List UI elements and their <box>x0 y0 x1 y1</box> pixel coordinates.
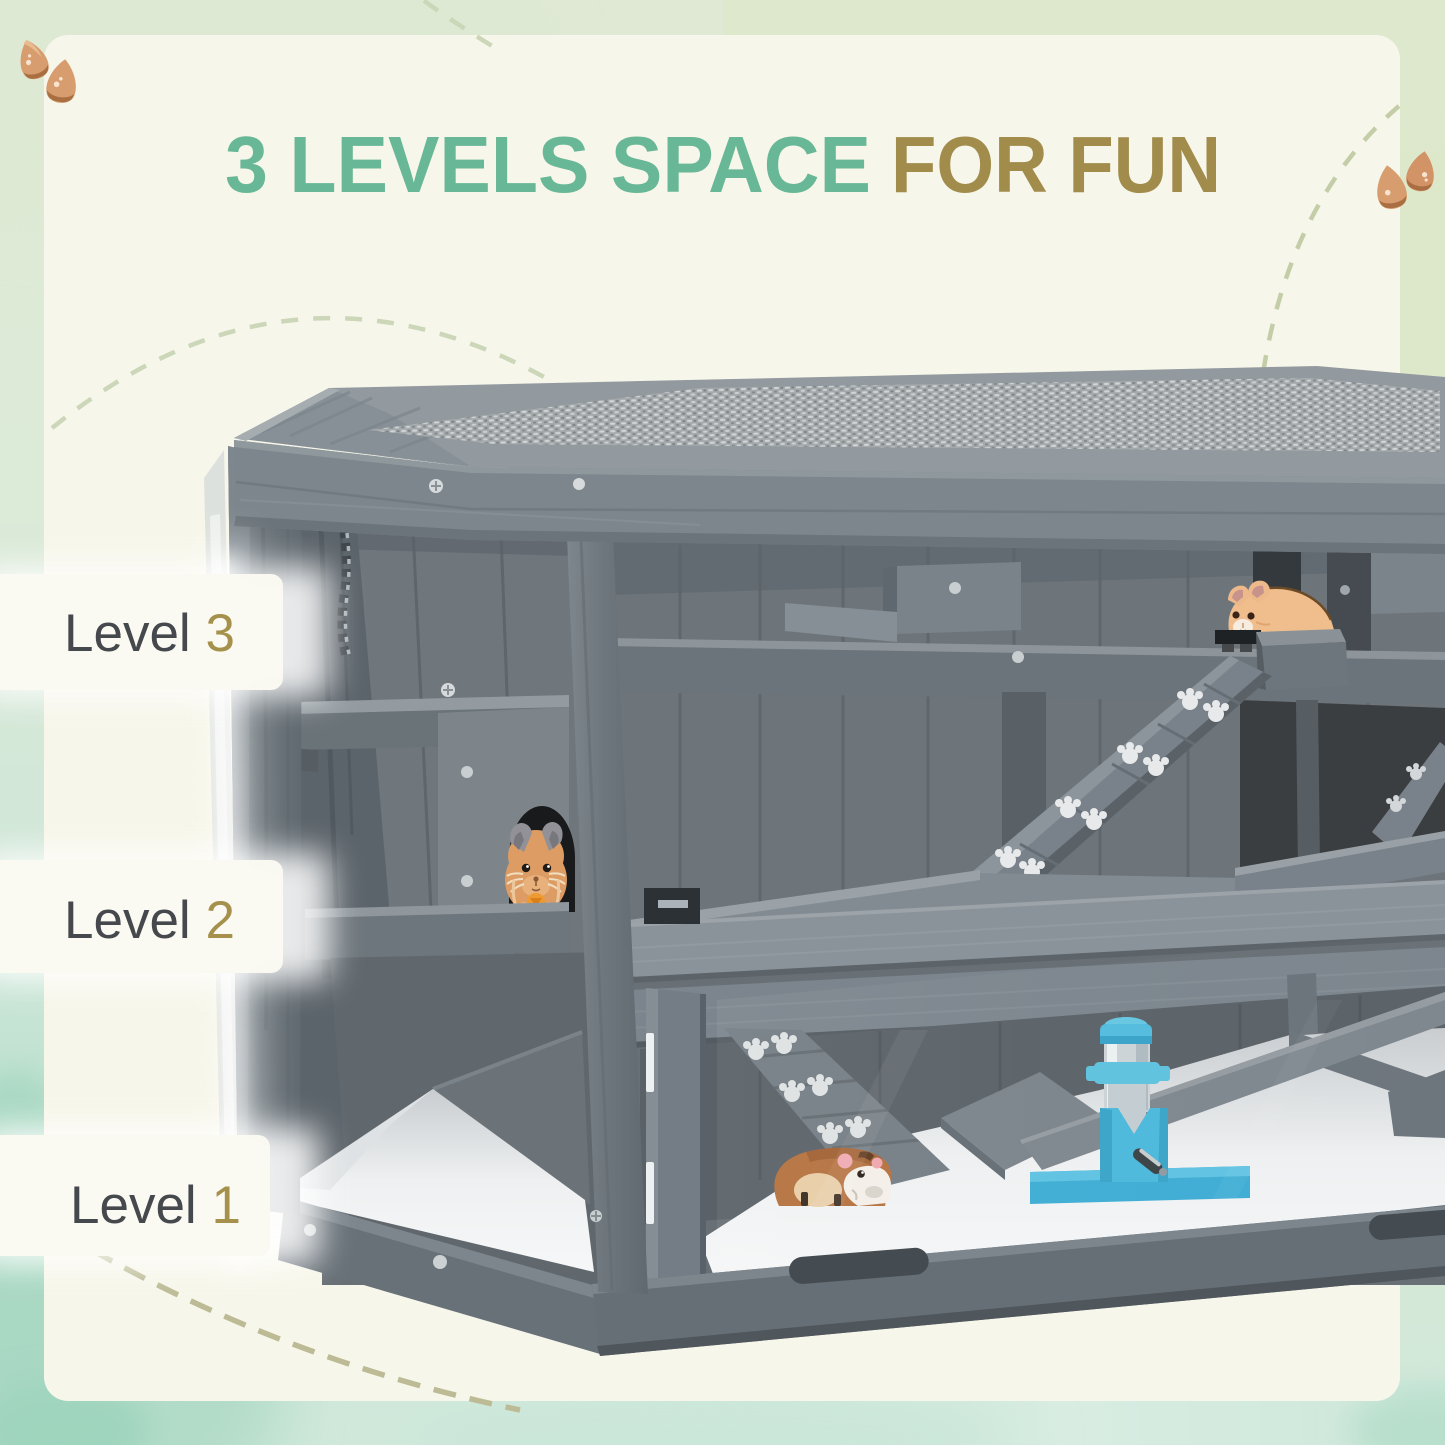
svg-text:Level 1: Level 1 <box>70 1176 241 1235</box>
svg-text:3 LEVELS SPACE: 3 LEVELS SPACE <box>225 120 871 209</box>
svg-text:Level 3: Level 3 <box>64 604 235 663</box>
svg-text:Level 2: Level 2 <box>64 891 235 950</box>
svg-text:FOR FUN: FOR FUN <box>891 120 1221 209</box>
